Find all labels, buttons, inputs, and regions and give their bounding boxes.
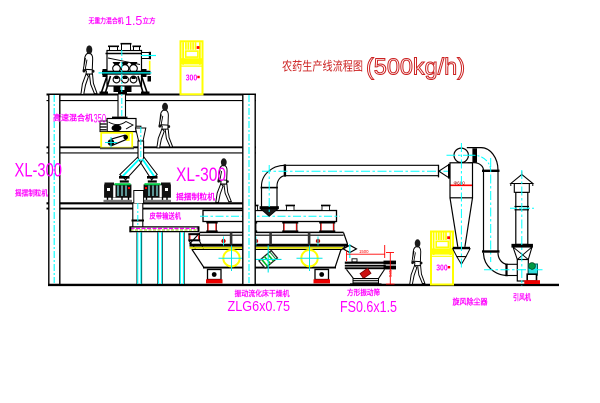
svg-text:FS0.6x1.5: FS0.6x1.5 [340, 299, 397, 316]
svg-text:引风机: 引风机 [513, 292, 531, 302]
svg-text:振动流化床干燥机: 振动流化床干燥机 [235, 289, 291, 298]
svg-text:Φ600: Φ600 [454, 180, 466, 185]
svg-text:旋风除尘器: 旋风除尘器 [452, 297, 489, 307]
svg-text:方形振动筛: 方形振动筛 [347, 288, 381, 297]
svg-text:XL-300: XL-300 [176, 165, 226, 186]
svg-text:1.5: 1.5 [125, 14, 142, 28]
svg-text:高速混合机: 高速混合机 [53, 113, 93, 123]
svg-text:(500kg/h): (500kg/h) [366, 54, 465, 80]
svg-text:ZLG6x0.75: ZLG6x0.75 [228, 298, 291, 315]
svg-text:350: 350 [94, 114, 107, 126]
svg-text:摇摆制粒机: 摇摆制粒机 [15, 189, 49, 198]
svg-text:摇摆制粒机: 摇摆制粒机 [176, 192, 215, 202]
svg-text:1500: 1500 [359, 249, 369, 254]
svg-text:XL-300: XL-300 [15, 161, 63, 182]
svg-text:农药生产线流程图: 农药生产线流程图 [282, 59, 363, 74]
svg-text:立方: 立方 [143, 16, 156, 25]
svg-text:无重力混合机: 无重力混合机 [88, 16, 124, 25]
svg-text:皮带输送机: 皮带输送机 [149, 211, 182, 221]
svg-text:545: 545 [388, 269, 393, 277]
